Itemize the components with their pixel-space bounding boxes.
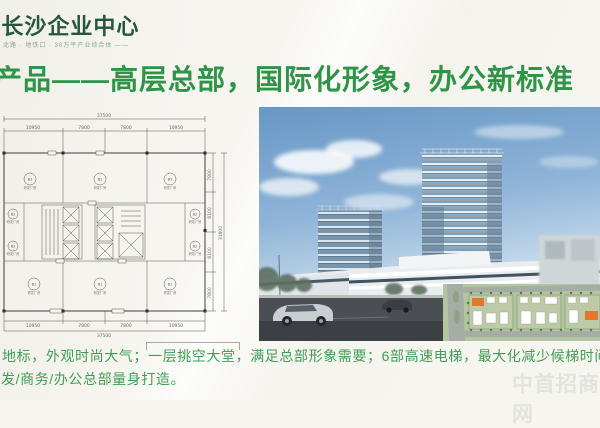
unit-label: B2 [11,245,16,249]
unit-caption: 研发厂房 [7,219,20,224]
unit-label: B2 [193,213,198,217]
unit-caption: 研发厂房 [164,185,177,190]
feature-text-line2: 发/商务/办公总部量身打造。 [1,369,185,389]
unit-label: B1 [168,178,173,182]
unit-caption: 研发厂房 [24,185,37,190]
building-rendering [259,107,600,341]
unit-caption: 研发厂房 [94,290,107,295]
dim-top-total: 37500 [97,113,111,119]
dim-right-seg: 8100 [207,207,213,219]
slide-headline: 产品——高层总部，国际化形象，办公新标准 [0,58,574,98]
dim-bottom-seg: 10950 [169,323,183,329]
dim-top-seg: 7800 [78,125,90,131]
dim-bottom-seg: 7800 [120,323,132,329]
unit-label: B2 [193,245,198,249]
dim-right-seg: 8100 [207,247,213,259]
unit-caption: 研发厂房 [28,290,41,295]
logo: ·长沙企业中心 北路 · 地铁口 · 30万平产业综合体 —— [0,16,139,49]
unit-caption: 研发厂房 [94,185,107,190]
dim-top-seg: 7800 [120,125,132,131]
unit-label: B1 [32,283,37,287]
dim-bottom-seg: 10950 [26,323,40,329]
logo-tagline: 北路 · 地铁口 · 30万平产业综合体 —— [3,40,139,49]
unit-label: B1 [98,178,103,182]
dim-top-seg: 10950 [169,125,183,131]
logo-title: ·长沙企业中心 [0,16,139,38]
unit-caption: 研发厂房 [7,251,20,256]
dim-top-seg: 10950 [26,125,40,131]
dim-right-seg: 7800 [207,287,213,299]
floorplan-drawing: 37500 10950 7800 7800 10950 [0,99,246,349]
unit-caption: 研发厂房 [164,290,177,295]
unit-caption: 研发厂房 [189,219,202,224]
unit-label: B1 [28,178,33,182]
tower-left [316,206,384,278]
unit-caption: 研发厂房 [189,251,202,256]
dim-bottom-total: 37500 [97,333,111,339]
unit-label: B2 [11,213,16,217]
distant-buildings [539,235,600,285]
dim-bottom-seg: 7800 [78,323,90,329]
dim-right-seg: 7800 [207,169,213,181]
unit-label: B1 [168,283,173,287]
watermark: 中首招商网 [512,368,600,428]
siteplan-inset [443,284,600,341]
dim-right-total: 31800 [218,226,224,240]
unit-label: B1 [98,283,103,287]
feature-text-line1: 地标，外观时尚大气；一层挑空大堂，满足总部形象需要；6部高速电梯，最大化减少候梯… [2,346,600,366]
